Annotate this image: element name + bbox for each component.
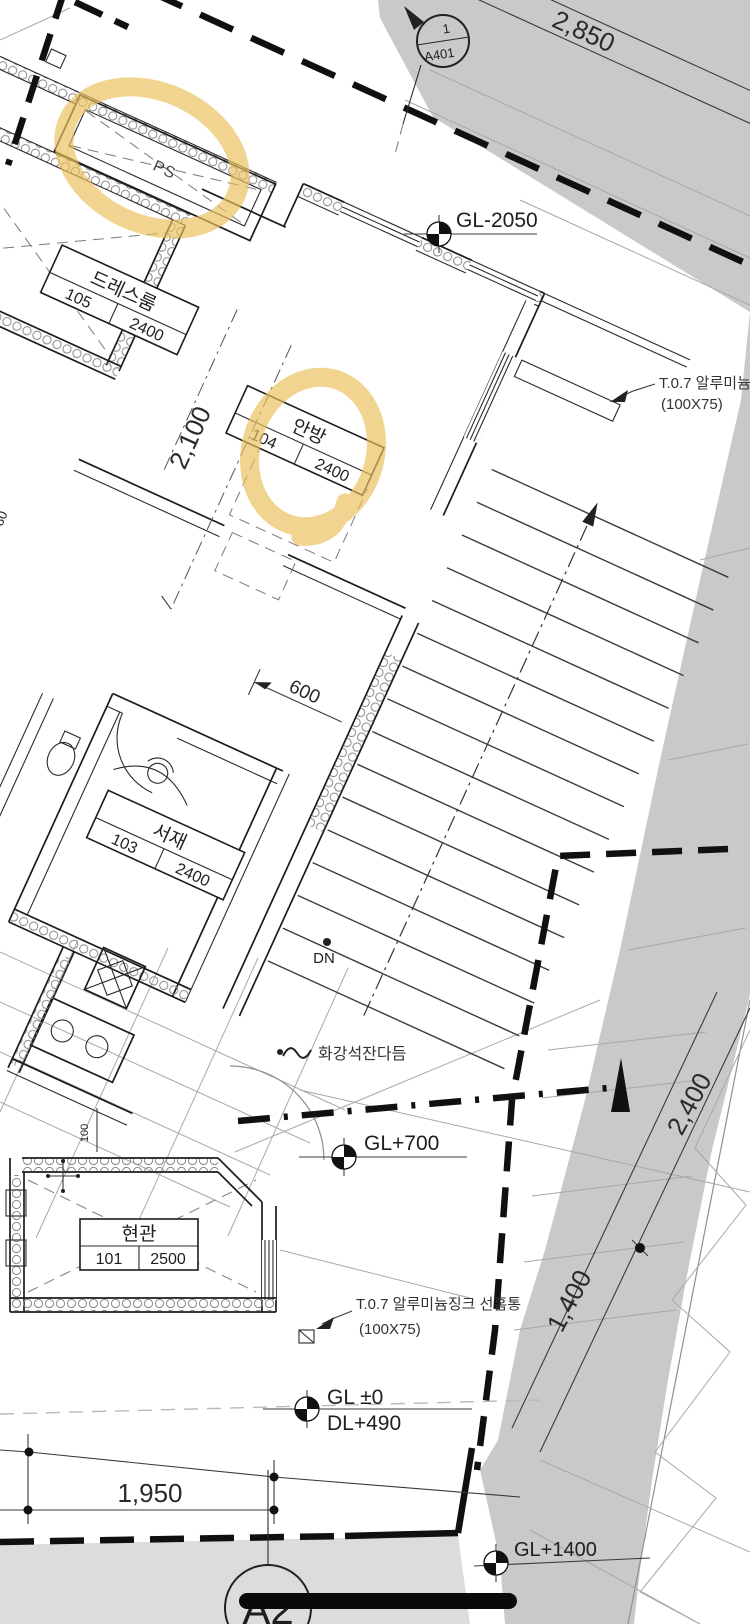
stair-direction-arrow [582,500,603,527]
svg-text:2,100: 2,100 [163,402,217,474]
room-tag-dressroom: 드레스룸 105 2400 [41,245,199,355]
ps-label: PS [150,158,178,183]
svg-text:2500: 2500 [150,1251,186,1268]
bath-fixture [0,693,94,917]
corridor: 600 [126,571,419,1016]
svg-text:GL-2050: GL-2050 [456,209,538,232]
svg-text:T.0.7 알루미늄징크: T.0.7 알루미늄징크 [659,375,750,392]
svg-text:1,950: 1,950 [117,1478,182,1508]
room-tag-entrance: 현관 101 2500 [80,1219,198,1270]
svg-text:DL+490: DL+490 [327,1412,401,1435]
dim-bottom-1950: 1,950 [0,1434,520,1524]
svg-text:101: 101 [96,1251,123,1268]
granite-finish-note: 화강석잔다듬 [277,1045,406,1063]
dressroom: 드레스룸 105 2400 [0,120,227,399]
svg-text:(100X75): (100X75) [661,396,723,413]
svg-text:화강석잔다듬: 화강석잔다듬 [318,1045,406,1063]
dim-80: 80 [0,509,11,528]
svg-text:(100X75): (100X75) [359,1321,421,1338]
level-marker-gl0: GL ±0 DL+490 [263,1386,472,1435]
dim-master-left: 2,100 [108,307,295,609]
dim-wall-100: 100 [79,1124,91,1142]
svg-text:GL ±0: GL ±0 [327,1386,383,1409]
downspout-note: T.0.7 알루미늄징크 선홈통 (100X75) [299,1295,521,1343]
zinc-note-right: T.0.7 알루미늄징크 (100X75) [610,375,750,413]
stair-dn-label: DN [313,938,335,967]
svg-text:GL+700: GL+700 [364,1132,439,1155]
room-tag-study: 서재 103 2400 [87,790,245,900]
floor-plan-sheet: 2,850 PS [0,0,750,1624]
svg-text:현관: 현관 [122,1223,157,1245]
svg-text:DN: DN [313,950,335,967]
dim-stair: 600 [286,676,324,708]
entrance-block: 현관 101 2500 100 [6,1066,324,1312]
svg-text:T.0.7 알루미늄징크 선홈통: T.0.7 알루미늄징크 선홈통 [356,1295,521,1313]
svg-text:GL+1400: GL+1400 [514,1539,597,1561]
